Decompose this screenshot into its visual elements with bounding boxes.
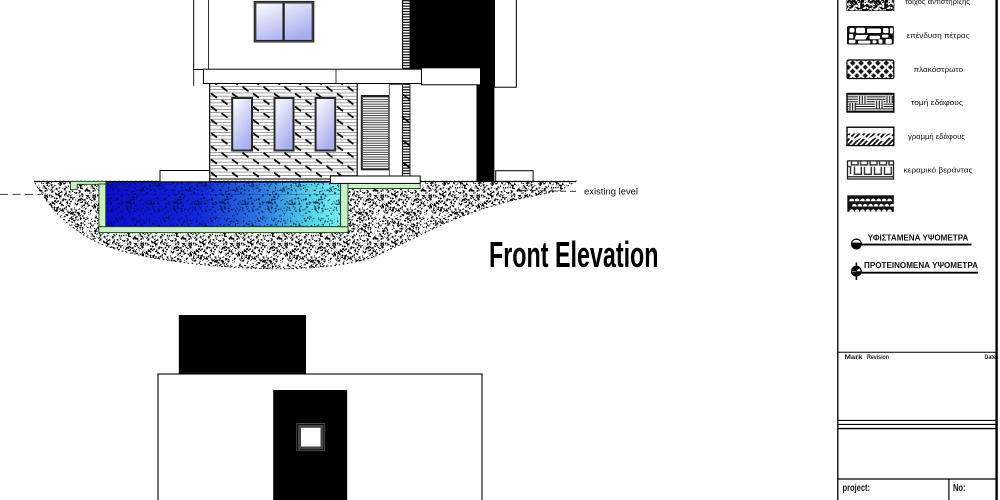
svg-text:Revision: Revision (867, 354, 889, 361)
svg-text:ΥΦΙΣΤΑΜΕΝΑ ΥΨΟΜΕΤΡΑ: ΥΦΙΣΤΑΜΕΝΑ ΥΨΟΜΕΤΡΑ (868, 233, 969, 243)
svg-text:επένδυση πέτρας: επένδυση πέτρας (907, 31, 971, 40)
svg-text:ΠΡΟΤΕΙΝΟΜΕΝΑ ΥΨΟΜΕΤΡΑ: ΠΡΟΤΕΙΝΟΜΕΝΑ ΥΨΟΜΕΤΡΑ (864, 260, 978, 270)
svg-text:Mark: Mark (845, 354, 864, 361)
svg-text:No:: No: (953, 483, 966, 494)
svg-text:project:: project: (843, 483, 871, 494)
svg-text:τομή εδάφους: τομή εδάφους (911, 98, 964, 107)
svg-text:Date: Date (985, 354, 997, 361)
svg-text:existing level: existing level (584, 187, 638, 198)
svg-text:κεραμικό βεράντας: κεραμικό βεράντας (904, 165, 974, 174)
svg-text:γραμμή εδάφους: γραμμή εδάφους (908, 132, 966, 141)
svg-text:τοίχος αντιστήριξης: τοίχος αντιστήριξης (905, 0, 971, 6)
svg-text:Front Elevation: Front Elevation (489, 234, 659, 275)
svg-text:πλακόστρωτο: πλακόστρωτο (914, 65, 964, 74)
